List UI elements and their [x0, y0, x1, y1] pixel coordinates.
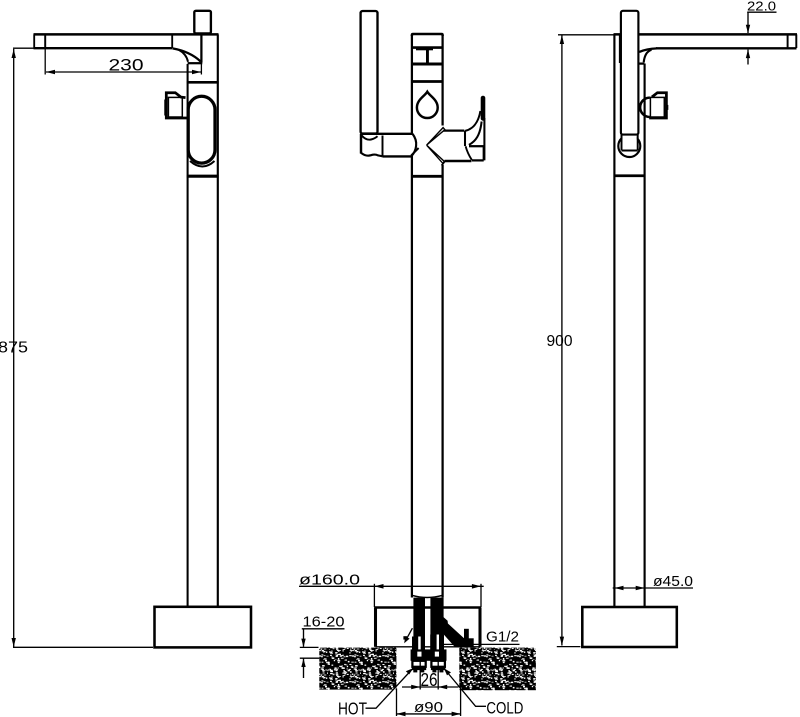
svg-text:COLD: COLD — [486, 699, 523, 717]
svg-text:900: 900 — [547, 333, 573, 350]
svg-text:G1/2: G1/2 — [486, 630, 519, 646]
svg-text:HOT: HOT — [338, 699, 367, 717]
svg-text:230: 230 — [109, 57, 144, 75]
svg-text:22.0: 22.0 — [747, 0, 776, 14]
svg-text:26: 26 — [421, 670, 438, 690]
svg-text:875: 875 — [0, 340, 28, 357]
svg-text:16-20: 16-20 — [303, 614, 345, 631]
svg-text:ø90: ø90 — [414, 699, 443, 716]
